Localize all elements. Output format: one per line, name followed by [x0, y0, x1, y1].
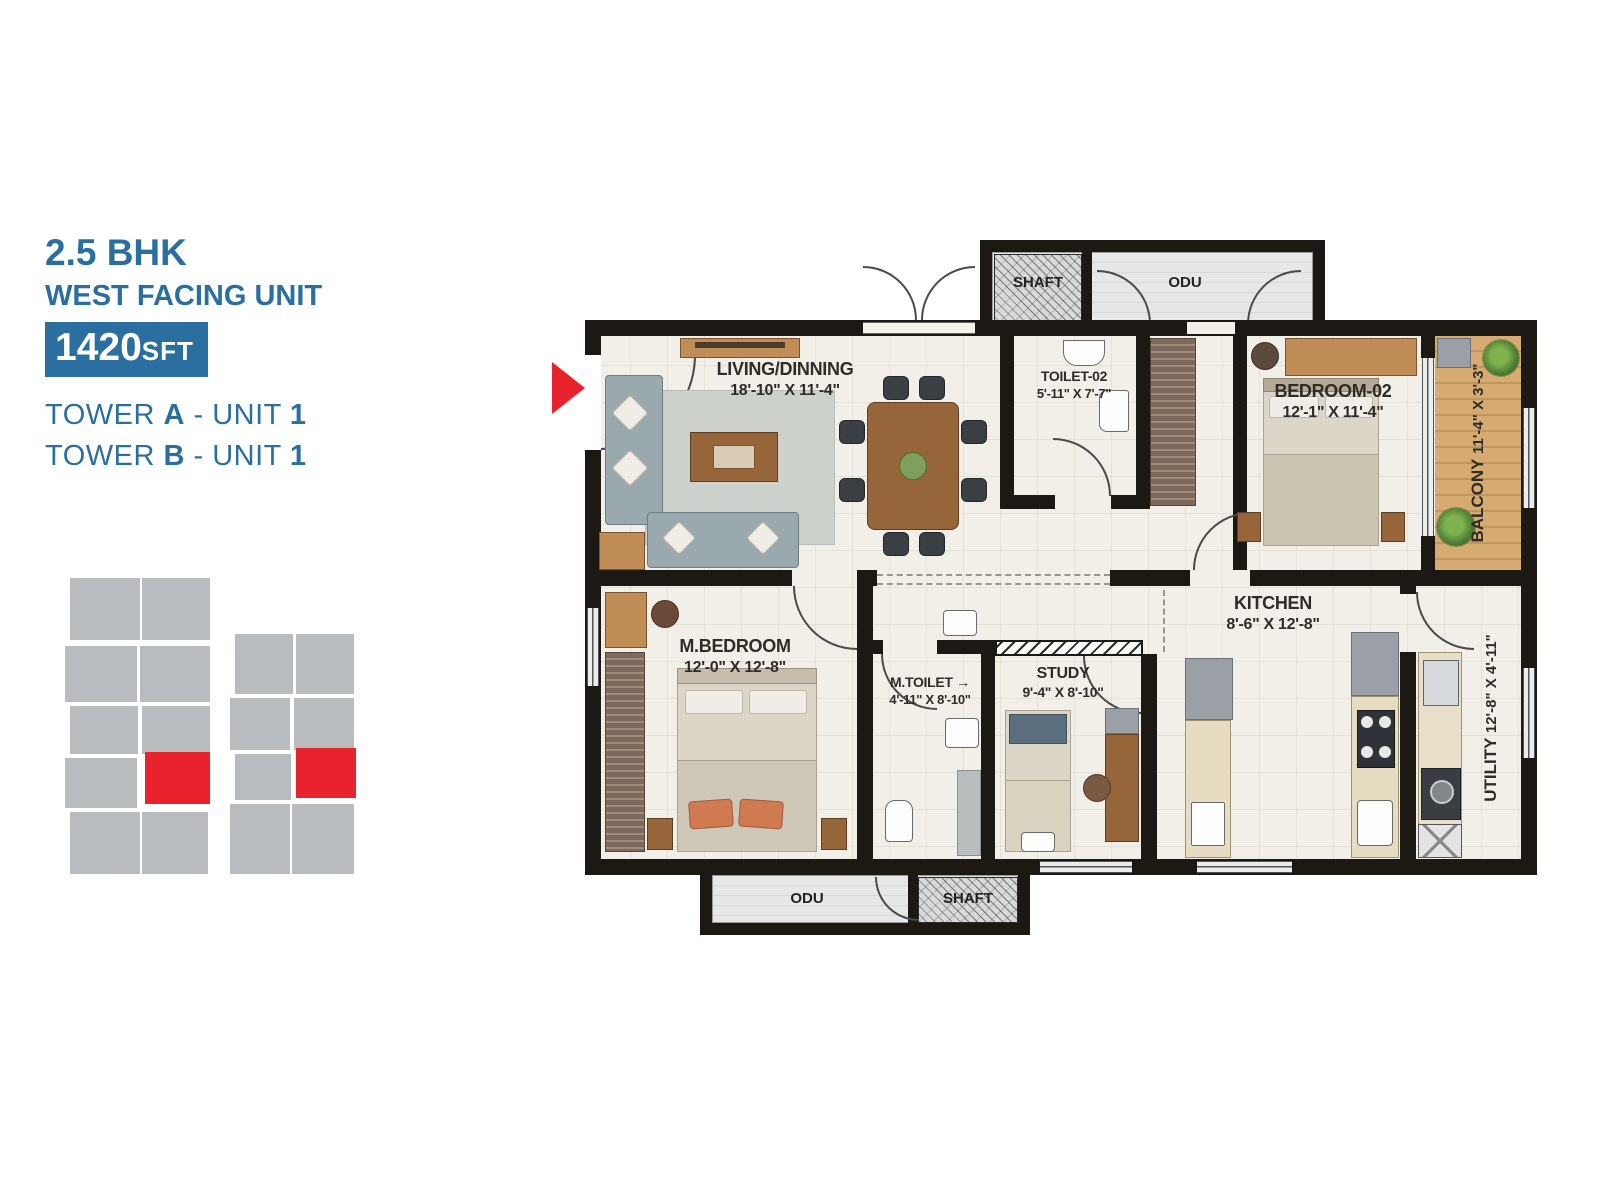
fridge — [1185, 658, 1233, 720]
odu-top-label: ODU — [1168, 274, 1201, 291]
wall-outer-right — [1521, 320, 1537, 875]
keyplan-block — [70, 578, 140, 640]
keyplan-block — [70, 812, 140, 874]
page: { "colors": { "accent_blue": "#2a6f9f", … — [0, 0, 1600, 1200]
study-bed-pillow — [1009, 714, 1067, 744]
sofa-left — [605, 375, 663, 525]
corridor-dashed-line — [877, 574, 1110, 576]
living-label: LIVING/DINNING18'-10" X 11'-4" — [717, 358, 854, 401]
bedroom02-label: BEDROOM-0212'-1" X 11'-4" — [1274, 380, 1391, 423]
corridor-dashed-line — [877, 583, 1110, 585]
keyplan-block — [70, 706, 138, 754]
dining-chair — [961, 478, 987, 502]
dresser — [605, 592, 647, 648]
utility-sink — [1423, 660, 1459, 706]
washbasin — [1063, 340, 1105, 366]
corridor-opening-top — [1187, 322, 1235, 334]
kitchen-label: KITCHEN8'-6" X 12'-8" — [1226, 592, 1319, 635]
dining-chair — [839, 478, 865, 502]
tower-b-line: TOWER B - UNIT 1 — [45, 440, 322, 473]
keyplan-block — [65, 646, 137, 702]
wall-utility-left — [1400, 652, 1416, 860]
tv-cabinet — [680, 338, 800, 358]
tower-b-letter: B — [163, 440, 184, 472]
study-lintel-hatch — [995, 640, 1143, 656]
toilet-wc — [885, 800, 913, 842]
leader-arrow-icon: → — [956, 674, 970, 690]
wall-utility-left — [1400, 586, 1416, 594]
wardrobe — [1285, 338, 1417, 376]
window — [587, 608, 599, 686]
keyplan-block — [235, 634, 293, 694]
shaft-bottom-label: SHAFT — [943, 890, 993, 907]
room-dims: 8'-6" X 12'-8" — [1226, 615, 1319, 635]
french-door-arc — [863, 266, 917, 320]
room-name: BALCONY — [1468, 458, 1487, 542]
wall-mtoilet-right — [981, 654, 995, 860]
wall-mid-left — [857, 570, 877, 586]
dining-chair — [919, 376, 945, 400]
nightstand — [1237, 512, 1261, 542]
bed-footstool — [1021, 832, 1055, 852]
wall-toilet02-right — [1136, 336, 1150, 508]
keyplan-block — [230, 804, 290, 874]
kitchen-dashed-line — [1163, 590, 1165, 652]
floor-plan: SHAFT ODU ENT BALCONY 1 — [585, 240, 1540, 940]
tall-cabinet — [1351, 632, 1399, 696]
balcony-slider-window — [1422, 358, 1434, 536]
unit-info-panel: 2.5 BHK WEST FACING UNIT 1420SFT TOWER A… — [45, 232, 322, 473]
area-value: 1420 — [55, 326, 142, 369]
french-door-arc — [921, 266, 975, 320]
duct-hatch-strip — [1150, 338, 1196, 506]
entrance-opening — [585, 355, 601, 450]
burner — [1361, 716, 1373, 728]
wall-mbedroom-right — [857, 586, 873, 860]
wall — [700, 923, 1030, 935]
tower-b-unit: 1 — [290, 440, 307, 472]
washbasin — [945, 718, 979, 748]
french-door-opening — [863, 322, 975, 334]
room-name: STUDY — [1022, 664, 1103, 684]
wall-mtoilet-top — [937, 640, 995, 654]
keyplan-block — [142, 706, 210, 754]
plant-icon — [1483, 340, 1519, 376]
room-name: UTILITY — [1481, 738, 1500, 802]
wall — [980, 240, 1325, 252]
tower-a-prefix: TOWER — [45, 399, 163, 431]
keyplan-block — [235, 754, 291, 800]
burner — [1361, 746, 1373, 758]
balcony-unit-box — [1437, 338, 1471, 368]
mtoilet-label: M.TOILET →4'-11" X 8'-10" — [889, 674, 970, 708]
wall-balcony-stub — [1421, 536, 1435, 586]
wall-mid-left — [585, 570, 792, 586]
wall-fixture — [943, 610, 977, 636]
accent-pillow — [688, 798, 734, 829]
dining-chair — [883, 376, 909, 400]
keyplan-block — [140, 646, 210, 702]
room-dims: 12'-0" X 12'-8" — [679, 658, 790, 678]
keyplan-block — [65, 758, 137, 808]
bed-blanket — [1264, 454, 1378, 545]
room-name-text: M.TOILET — [890, 674, 953, 690]
tower-a-unit: 1 — [290, 399, 307, 431]
room-dims: 12'-1" X 11'-4" — [1274, 403, 1391, 423]
room-dims: 11'-4" X 3'-3" — [1470, 363, 1487, 454]
window — [1523, 668, 1535, 758]
entry-arrow-icon — [552, 362, 585, 414]
coffee-table-tray — [713, 445, 755, 469]
tower-list: TOWER A - UNIT 1 TOWER B - UNIT 1 — [45, 399, 322, 473]
bed-pillow — [749, 690, 807, 714]
tower-a-mid: - UNIT — [185, 399, 290, 431]
accent-pillow — [738, 798, 784, 829]
wall — [1082, 252, 1092, 328]
room-name: BEDROOM-02 — [1274, 380, 1391, 403]
wall-toilet02-left — [1000, 336, 1014, 508]
wardrobe-hatch — [605, 652, 645, 852]
keyplan-block — [142, 578, 210, 640]
study-label: STUDY9'-4" X 8'-10" — [1022, 664, 1103, 702]
shaft-top-label: SHAFT — [1013, 274, 1063, 291]
keyplan-block — [292, 804, 354, 874]
kitchen-sink — [1357, 800, 1393, 846]
utility-label: UTILITY 12'-8" X 4'-11" — [1481, 634, 1501, 802]
unit-type-title: 2.5 BHK — [45, 232, 322, 274]
keyplan-unit-highlight-b — [296, 748, 356, 798]
area-badge: 1420SFT — [45, 322, 208, 377]
burner — [1379, 746, 1391, 758]
balcony-label: BALCONY 11'-4" X 3'-3" — [1468, 363, 1488, 542]
keyplan-block — [230, 698, 290, 750]
window — [1523, 408, 1535, 508]
kitchen-cabinet — [1191, 802, 1225, 846]
desk-hutch — [1105, 708, 1139, 734]
room-dims: 18'-10" X 11'-4" — [717, 381, 854, 401]
odu-bottom-label: ODU — [790, 890, 823, 907]
toilet02-label: TOILET-025'-11" X 7'-7" — [1037, 368, 1111, 402]
dining-centerpiece — [899, 452, 927, 480]
window — [1040, 861, 1132, 873]
tower-a-line: TOWER A - UNIT 1 — [45, 399, 322, 432]
tower-a-letter: A — [163, 399, 184, 431]
room-name: KITCHEN — [1226, 592, 1319, 615]
wall-outer-top — [585, 320, 1537, 336]
wall-mid-right — [1250, 570, 1537, 586]
utility-hatch-box — [1418, 824, 1462, 858]
desk-chair — [1083, 774, 1111, 802]
wall — [1313, 240, 1325, 328]
dining-chair — [961, 420, 987, 444]
wall-study-right — [1141, 654, 1157, 860]
bed-pillow — [685, 690, 743, 714]
dining-chair — [919, 532, 945, 556]
dining-chair — [883, 532, 909, 556]
area-unit: SFT — [142, 336, 194, 366]
room-name: TOILET-02 — [1037, 368, 1111, 386]
room-dims: 5'-11" X 7'-7" — [1037, 386, 1111, 402]
wall-mid-right — [1110, 570, 1190, 586]
keyplan-block — [142, 812, 208, 874]
tv-icon — [695, 342, 785, 348]
room-dims: 9'-4" X 8'-10" — [1022, 684, 1103, 702]
nightstand — [1381, 512, 1405, 542]
mbedroom-label: M.BEDROOM12'-0" X 12'-8" — [679, 635, 790, 678]
wall-balcony-stub — [1421, 336, 1435, 358]
wall-toilet02-bottom — [1000, 495, 1055, 509]
unit-facing-subtitle: WEST FACING UNIT — [45, 280, 322, 313]
dining-chair — [839, 420, 865, 444]
keyplan-unit-highlight-a — [145, 752, 210, 804]
wall — [980, 240, 992, 328]
keyplan-block — [296, 634, 354, 694]
chair — [651, 600, 679, 628]
tower-b-mid: - UNIT — [185, 440, 290, 472]
shower-panel — [957, 770, 981, 856]
room-name: M.TOILET → — [889, 674, 970, 692]
window — [1197, 861, 1292, 873]
room-dims: 4'-11" X 8'-10" — [889, 692, 970, 708]
nightstand — [821, 818, 847, 850]
tower-b-prefix: TOWER — [45, 440, 163, 472]
room-name: LIVING/DINNING — [717, 358, 854, 381]
room-dims: 12'-8" X 4'-11" — [1483, 634, 1500, 733]
nightstand — [647, 818, 673, 850]
wall-mtoilet-top — [873, 640, 883, 654]
keyplan-block — [294, 698, 354, 750]
room-name: M.BEDROOM — [679, 635, 790, 658]
chair — [1251, 342, 1279, 370]
burner — [1379, 716, 1391, 728]
side-table — [599, 532, 645, 570]
washing-machine-door — [1430, 780, 1454, 804]
